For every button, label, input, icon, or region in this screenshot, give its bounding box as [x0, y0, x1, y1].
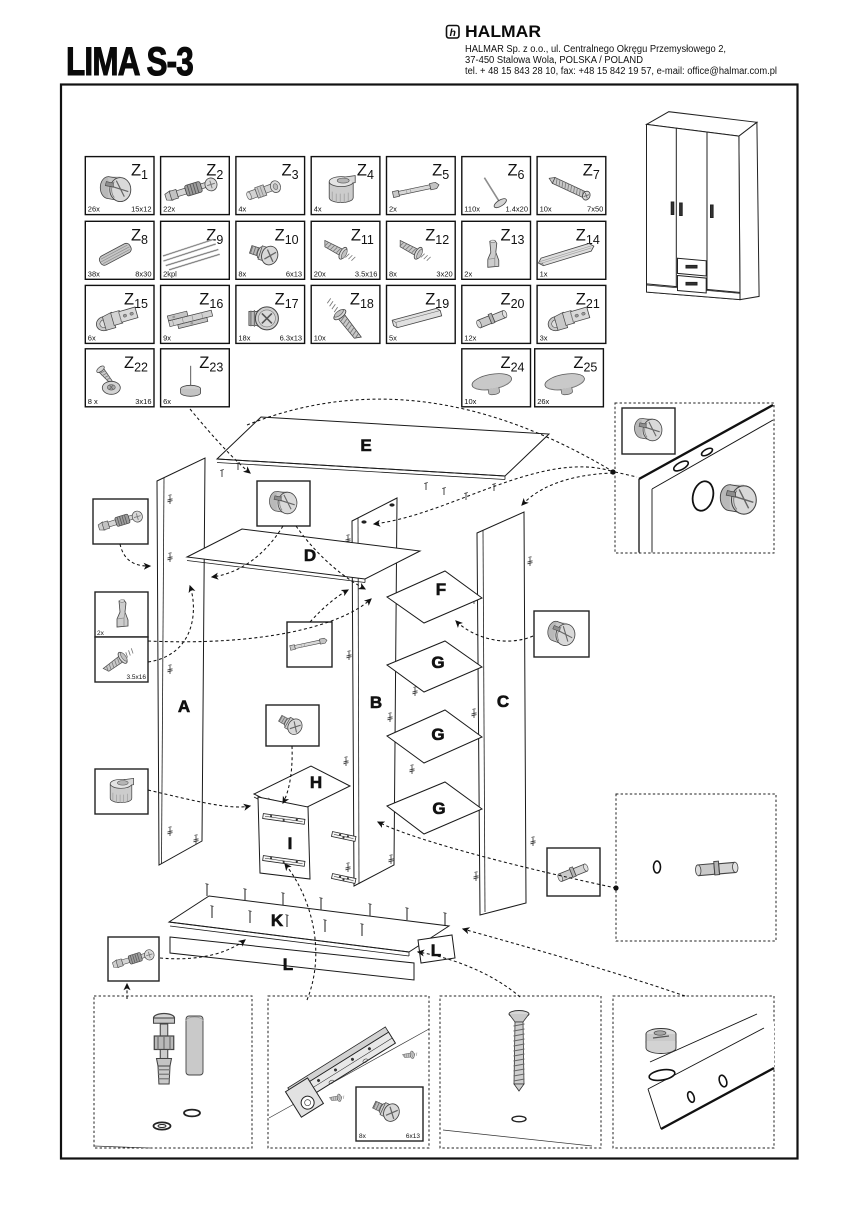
svg-text:38x: 38x: [88, 269, 100, 278]
svg-text:HALMAR: HALMAR: [465, 23, 541, 41]
svg-text:8x: 8x: [389, 269, 397, 278]
svg-text:4x: 4x: [238, 205, 246, 214]
svg-text:18x: 18x: [238, 333, 250, 342]
svg-text:6x: 6x: [88, 333, 96, 342]
svg-text:2x: 2x: [389, 205, 397, 214]
svg-text:E: E: [360, 436, 371, 455]
svg-text:6.3x13: 6.3x13: [280, 333, 303, 342]
svg-text:110x: 110x: [464, 205, 480, 214]
svg-text:12x: 12x: [464, 333, 476, 342]
svg-text:10x: 10x: [464, 397, 476, 406]
svg-text:h: h: [450, 27, 456, 39]
svg-text:H: H: [310, 773, 322, 792]
svg-text:7x50: 7x50: [587, 205, 603, 214]
svg-text:3.5x16: 3.5x16: [355, 269, 378, 278]
svg-text:I: I: [288, 834, 293, 853]
svg-text:5x: 5x: [389, 333, 397, 342]
svg-text:8x: 8x: [238, 269, 246, 278]
svg-text:22x: 22x: [163, 205, 175, 214]
svg-text:1x: 1x: [540, 269, 548, 278]
svg-text:9x: 9x: [163, 333, 171, 342]
svg-text:L: L: [283, 955, 293, 974]
svg-text:4x: 4x: [314, 205, 322, 214]
svg-text:HALMAR Sp. z o.o., ul. Central: HALMAR Sp. z o.o., ul. Centralnego Okręg…: [465, 44, 726, 55]
svg-text:A: A: [178, 697, 190, 716]
svg-text:26x: 26x: [88, 205, 100, 214]
svg-text:10x: 10x: [540, 205, 552, 214]
svg-text:2x: 2x: [464, 269, 472, 278]
svg-text:F: F: [436, 580, 446, 599]
svg-text:37-450 Stalowa Wola, POLSKA /: 37-450 Stalowa Wola, POLSKA / POLAND: [465, 55, 643, 66]
svg-text:26x: 26x: [537, 397, 549, 406]
svg-text:3x16: 3x16: [135, 397, 151, 406]
svg-text:8 x: 8 x: [88, 397, 98, 406]
svg-text:20x: 20x: [314, 269, 326, 278]
svg-text:G: G: [431, 725, 444, 744]
svg-text:3x20: 3x20: [436, 269, 452, 278]
svg-text:6x13: 6x13: [286, 269, 302, 278]
svg-text:3x: 3x: [540, 333, 548, 342]
svg-text:K: K: [271, 911, 284, 930]
svg-text:G: G: [432, 799, 445, 818]
svg-text:6x13: 6x13: [406, 1133, 420, 1140]
svg-text:8x: 8x: [359, 1133, 367, 1140]
svg-text:3.5x16: 3.5x16: [126, 674, 146, 681]
svg-text:B: B: [370, 693, 382, 712]
svg-text:6x: 6x: [163, 397, 171, 406]
svg-text:LIMA S-3: LIMA S-3: [66, 40, 193, 84]
svg-text:1.4x20: 1.4x20: [505, 205, 528, 214]
svg-text:10x: 10x: [314, 333, 326, 342]
svg-text:G: G: [431, 653, 444, 672]
svg-text:8x30: 8x30: [135, 269, 151, 278]
svg-text:2x: 2x: [97, 630, 105, 637]
svg-text:2kpl: 2kpl: [163, 269, 177, 278]
svg-text:tel. + 48 15 843 28 10, fax: +: tel. + 48 15 843 28 10, fax: +48 15 842 …: [465, 66, 777, 77]
svg-text:15x12: 15x12: [131, 205, 151, 214]
svg-text:C: C: [497, 692, 509, 711]
